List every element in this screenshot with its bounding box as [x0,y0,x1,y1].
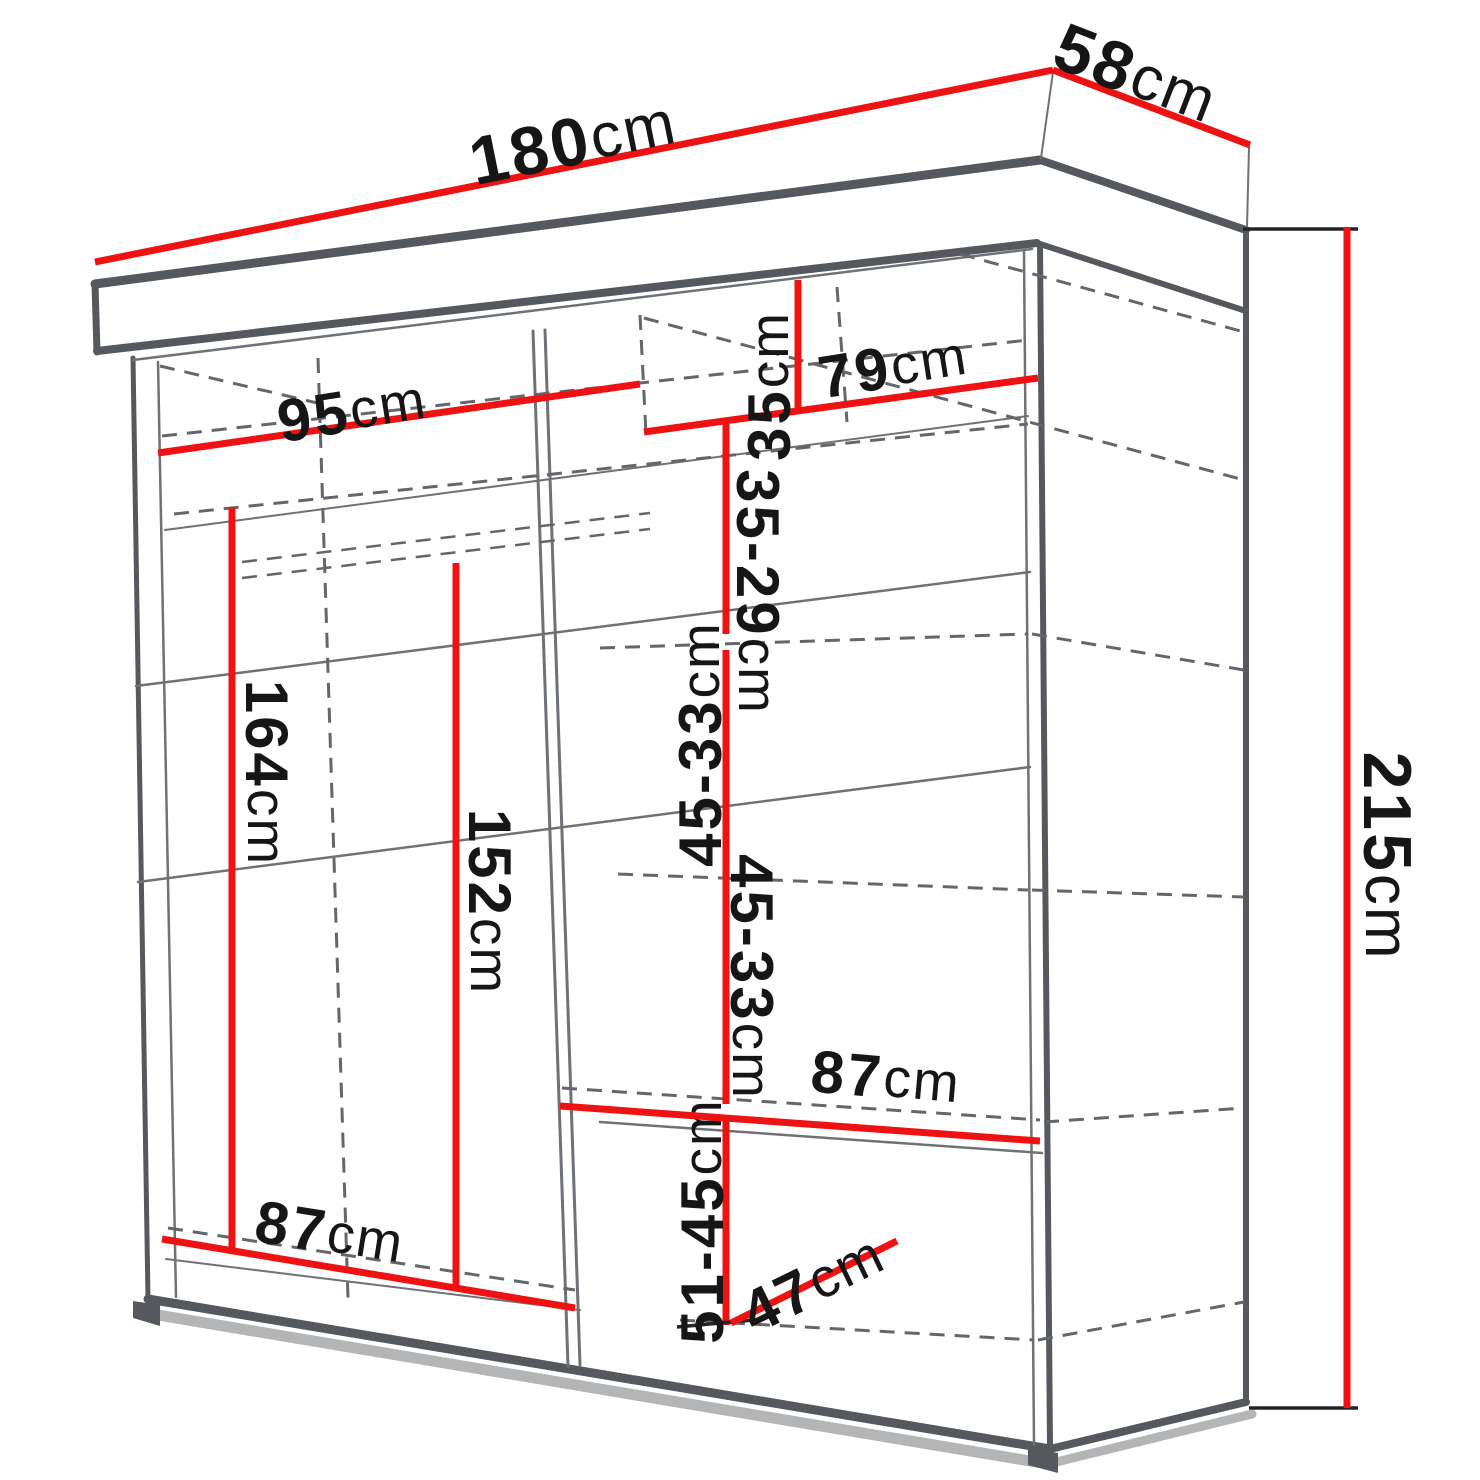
body-left-edge [133,358,148,1299]
wardrobe-dimension-diagram: 180cm 58cm 215cm 95cm 79cm 35cm 35-29cm … [0,0,1480,1480]
dim-hanging-middle: 152cm [456,563,524,1290]
dim-hanging-left: 164cm [232,507,301,1254]
apex-connector-line [1041,72,1053,158]
dim-shelf-spacing-4-value: 51-45 [669,1175,736,1343]
body-bottom-front-edge [148,1299,1050,1449]
dashed-shelf-5-depth [1038,1302,1244,1340]
dim-top-shelf-height-label: 35cm [736,311,803,461]
dim-right-width-unit: cm [886,324,972,397]
dim-hanging-middle-value: 152 [457,809,524,918]
dim-right-width-label: 79cm [814,321,973,411]
dim-total-depth-label: 58cm [1044,8,1228,139]
shadow-bottom-front [140,1312,1048,1464]
dim-shelf-spacing-2-label: 45-33cm [667,621,734,867]
dashed-shelf-3 [618,874,1028,890]
dim-top-shelf-height-unit: cm [738,311,800,388]
dim-top-shelf-height-value: 35 [736,388,803,461]
left-foot [133,1301,160,1326]
dim-hanging-left-label: 164cm [234,680,301,866]
dim-total-width: 180cm [95,70,1053,262]
dim-left-width-value: 95 [273,377,355,455]
dim-total-height-unit: cm [1353,874,1422,961]
dim-total-height-label: 215cm [1349,751,1425,960]
dim-shelf-spacing-2-value: 45-33 [667,698,734,866]
dashed-shelf-4-depth [1044,1108,1244,1122]
diagram-canvas: 180cm 58cm 215cm 95cm 79cm 35cm 35-29cm … [0,0,1480,1480]
dim-left-width: 95cm [158,365,640,455]
dim-bottom-left-width: 87cm [162,1187,575,1308]
dashed-divider-top [640,315,646,434]
dim-shelf-spacing-1-value: 35-29 [725,469,792,637]
dim-total-width-value: 180 [463,101,598,200]
interior-right-wall [1024,252,1034,1445]
front-rail-upper [136,572,1030,686]
dim-right-shelf-width-label: 87cm [808,1037,963,1117]
dim-shelf-spacing-3-label: 45-33cm [719,854,786,1100]
dim-total-width-label: 180cm [463,84,683,200]
dim-shelf-spacing-3-unit: cm [721,1023,783,1100]
dim-bottom-left-width-unit: cm [323,1201,409,1274]
dim-hanging-middle-label: 152cm [457,809,524,995]
dim-shelf-spacing-2-unit: cm [669,621,731,698]
dim-hanging-left-unit: cm [236,789,298,866]
dim-shelf-spacing-1-unit: cm [727,638,789,715]
dim-top-shelf-height: 35cm [736,280,803,461]
dim-total-depth: 58cm [1044,8,1250,145]
shelf-spacing-chain: 35-29cm 45-33cm 45-33cm 51-45cm [667,424,792,1344]
dashed-left-door-center [318,358,348,1298]
dim-left-width-label: 95cm [273,365,432,455]
dashed-shelf-4 [562,1088,1040,1120]
dim-hanging-middle-unit: cm [459,918,521,995]
crown-bottom-side-edge [1037,243,1246,311]
dashed-shelf-3-depth [1032,890,1244,897]
dim-total-height: 215cm [1243,228,1425,1408]
dim-shelf-spacing-1-label: 35-29cm [725,469,792,715]
dim-total-height-value: 215 [1349,751,1425,873]
dim-shelf-spacing-4-label: 51-45cm [669,1098,736,1344]
interior-left-wall [158,362,176,1297]
dim-left-width-unit: cm [345,368,431,441]
dim-hanging-left-value: 164 [234,680,301,789]
dim-right-shelf-width-unit: cm [881,1046,963,1115]
crown-top-side-edge [1040,160,1246,230]
dim-shelf-spacing-3-value: 45-33 [719,854,786,1022]
dim-right-width-value: 79 [814,333,896,411]
dim-right-shelf-width-value: 87 [808,1037,886,1110]
dim-bottom-left-width-value: 87 [251,1187,333,1265]
dim-shelf-spacing-4-unit: cm [671,1098,733,1175]
dim-bottom-left-width-label: 87cm [251,1187,410,1277]
dashed-shelf-2 [600,634,1028,648]
dashed-shelf-2-depth [1032,634,1244,670]
crown-left-edge [95,284,97,352]
right-connector-line [1247,147,1249,227]
dim-total-width-unit: cm [584,87,683,172]
